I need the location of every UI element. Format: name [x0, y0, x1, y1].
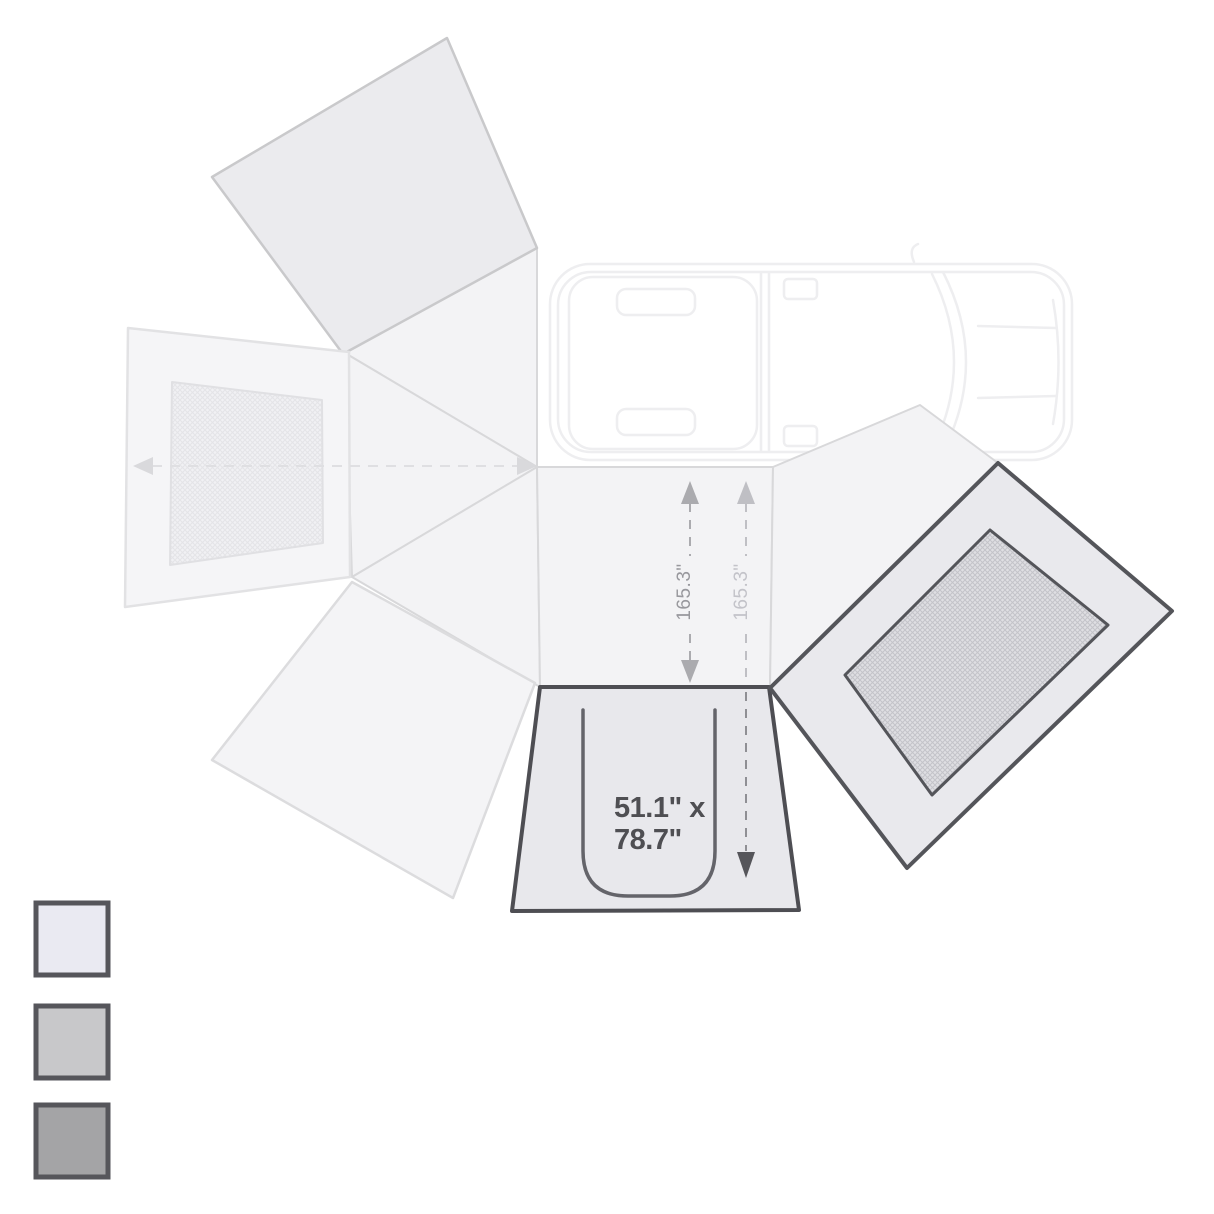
vehicle-outline [550, 244, 1072, 480]
mesh-window-left [170, 382, 323, 565]
vehicle-pillar-lines [761, 273, 769, 451]
vehicle-body-outer [550, 264, 1072, 460]
color-swatch-dark [36, 1105, 108, 1177]
awning-wall-panel-left [125, 328, 350, 607]
awning-wall-panel-door: 51.1" x 78.7" [512, 687, 799, 911]
vehicle-hood-lines [978, 326, 1056, 398]
door-dimension-line2: 78.7" [614, 824, 682, 856]
awning-diagram-canvas: 51.1" x 78.7" 165.3" 165.3" [0, 0, 1214, 1214]
vehicle-cab-corner-top [784, 279, 817, 299]
color-swatch-medium [36, 1006, 108, 1078]
vehicle-roof-tab-bottom [617, 409, 695, 435]
door-dimension-line1: 51.1" x [614, 792, 705, 824]
vehicle-front-line [1053, 300, 1059, 424]
dimension-label-right: 165.3" [731, 563, 752, 620]
vehicle-cargo-roof [569, 277, 757, 449]
awning-diagram: 51.1" x 78.7" 165.3" 165.3" [0, 0, 1214, 1214]
color-swatch-light [36, 903, 108, 975]
vehicle-roof-tab-top [617, 289, 695, 315]
color-swatch-legend [36, 903, 108, 1177]
vehicle-cab-corner-bottom [784, 426, 817, 446]
dimension-label-left: 165.3" [674, 563, 695, 620]
